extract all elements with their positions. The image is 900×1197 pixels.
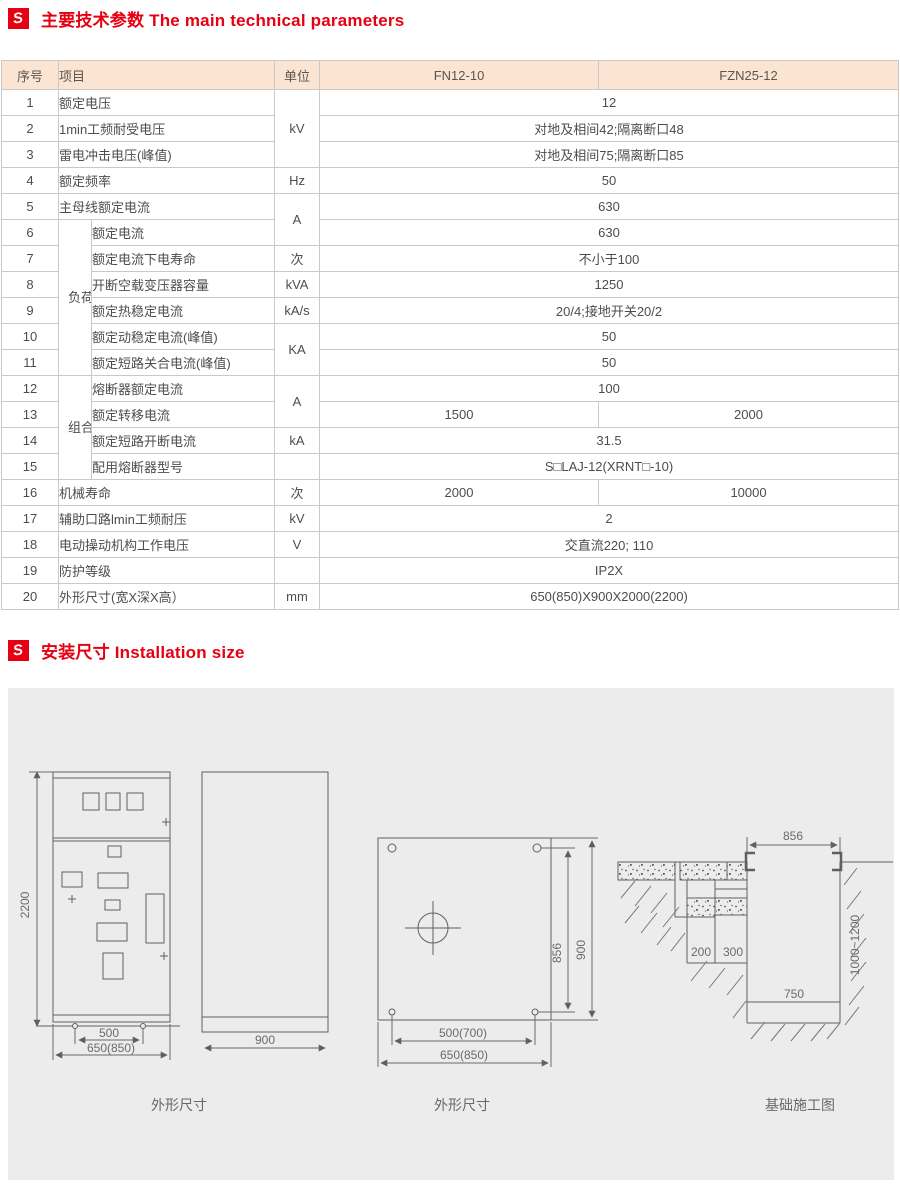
col-header-unit: 单位 [275,61,320,90]
dim-step-left: 200 [691,945,711,959]
dim-hole-height: 856 [550,943,564,963]
table-row: 16 机械寿命 次 2000 10000 [2,480,899,506]
col-header-model1: FN12-10 [320,61,599,90]
dim-trench-depth: 1000~1200 [848,914,862,975]
dim-depth: 900 [255,1033,275,1047]
cabinet-front-view [36,772,180,1029]
table-row: 1 额定电压 kV 12 [2,90,899,116]
table-row: 3 雷电冲击电压(峰值) 对地及相间75;隔离断口85 [2,142,899,168]
caption-plan-view: 外形尺寸 [397,1095,527,1115]
table-row: 5 主母线额定电流 A 630 [2,194,899,220]
table-row: 8 开断空载变压器容量 kVA 1250 [2,272,899,298]
dim-opening: 856 [783,829,803,843]
section1-header: S 主要技术参数 The main technical parameters [8,6,404,31]
table-row: 2 1min工频耐受电压 对地及相间42;隔离断口48 [2,116,899,142]
section2-title: 安装尺寸 Installation size [41,638,245,663]
dim-depth: 900 [574,940,588,960]
table-row: 10 额定动稳定电流(峰值) KA 50 [2,324,899,350]
base-plate-outline [378,838,551,1020]
table-row: 14 额定短路开断电流 kA 31.5 [2,428,899,454]
technical-parameters-table: 序号 项目 单位 FN12-10 FZN25-12 1 额定电压 kV 12 2… [1,60,899,610]
table-row: 20 外形尺寸(宽X深X高） mm 650(850)X900X2000(2200… [2,584,899,610]
dimension-lines [378,838,598,1067]
foundation-drawing: 856 1000~1200 200 300 750 [613,823,898,1058]
table-row: 6 负荷开关 额定电流 630 [2,220,899,246]
table-row: 18 电动操动机构工作电压 V 交直流220; 110 [2,532,899,558]
hatching [621,868,866,1041]
col-header-no: 序号 [2,61,59,90]
dim-width: 650(850) [440,1048,488,1062]
table-row: 17 辅助口路lmin工频耐压 kV 2 [2,506,899,532]
group-label-combined-apparatus: 组合电器 [59,376,92,480]
dim-hole-pitch: 500 [99,1026,119,1040]
table-row: 15 配用熔断器型号 S□LAJ-12(XRNT□-10) [2,454,899,480]
table-row: 12 组合电器 熔断器额定电流 A 100 [2,376,899,402]
dim-width: 650(850) [87,1041,135,1055]
plan-view-drawing: 856 900 500(700) 650(850) [365,798,615,1088]
table-header-row: 序号 项目 单位 FN12-10 FZN25-12 [2,61,899,90]
caption-foundation: 基础施工图 [735,1095,865,1115]
table-row: 4 额定频率 Hz 50 [2,168,899,194]
table-row: 13 额定转移电流 1500 2000 [2,402,899,428]
caption-front-view: 外形尺寸 [114,1095,244,1115]
col-header-model2: FZN25-12 [599,61,899,90]
dim-step-right: 300 [723,945,743,959]
group-label-load-switch: 负荷开关 [59,220,92,376]
dim-height: 2200 [18,891,32,918]
brand-logo-icon: S [8,640,29,661]
brand-logo-icon: S [8,8,29,29]
cabinet-side-view [202,772,328,1032]
dim-pit-width: 750 [784,987,804,1001]
col-header-item: 项目 [59,61,275,90]
table-row: 11 额定短路关合电流(峰值) 50 [2,350,899,376]
front-elevation-drawing: 2200 500 650(850) 900 [12,745,352,1085]
dim-hole-width: 500(700) [439,1026,487,1040]
section2-header: S 安装尺寸 Installation size [8,638,245,663]
table-row: 9 额定热稳定电流 kA/s 20/4;接地开关20/2 [2,298,899,324]
table-row: 7 额定电流下电寿命 次 不小于100 [2,246,899,272]
section1-title: 主要技术参数 The main technical parameters [41,6,404,31]
table-row: 19 防护等级 IP2X [2,558,899,584]
